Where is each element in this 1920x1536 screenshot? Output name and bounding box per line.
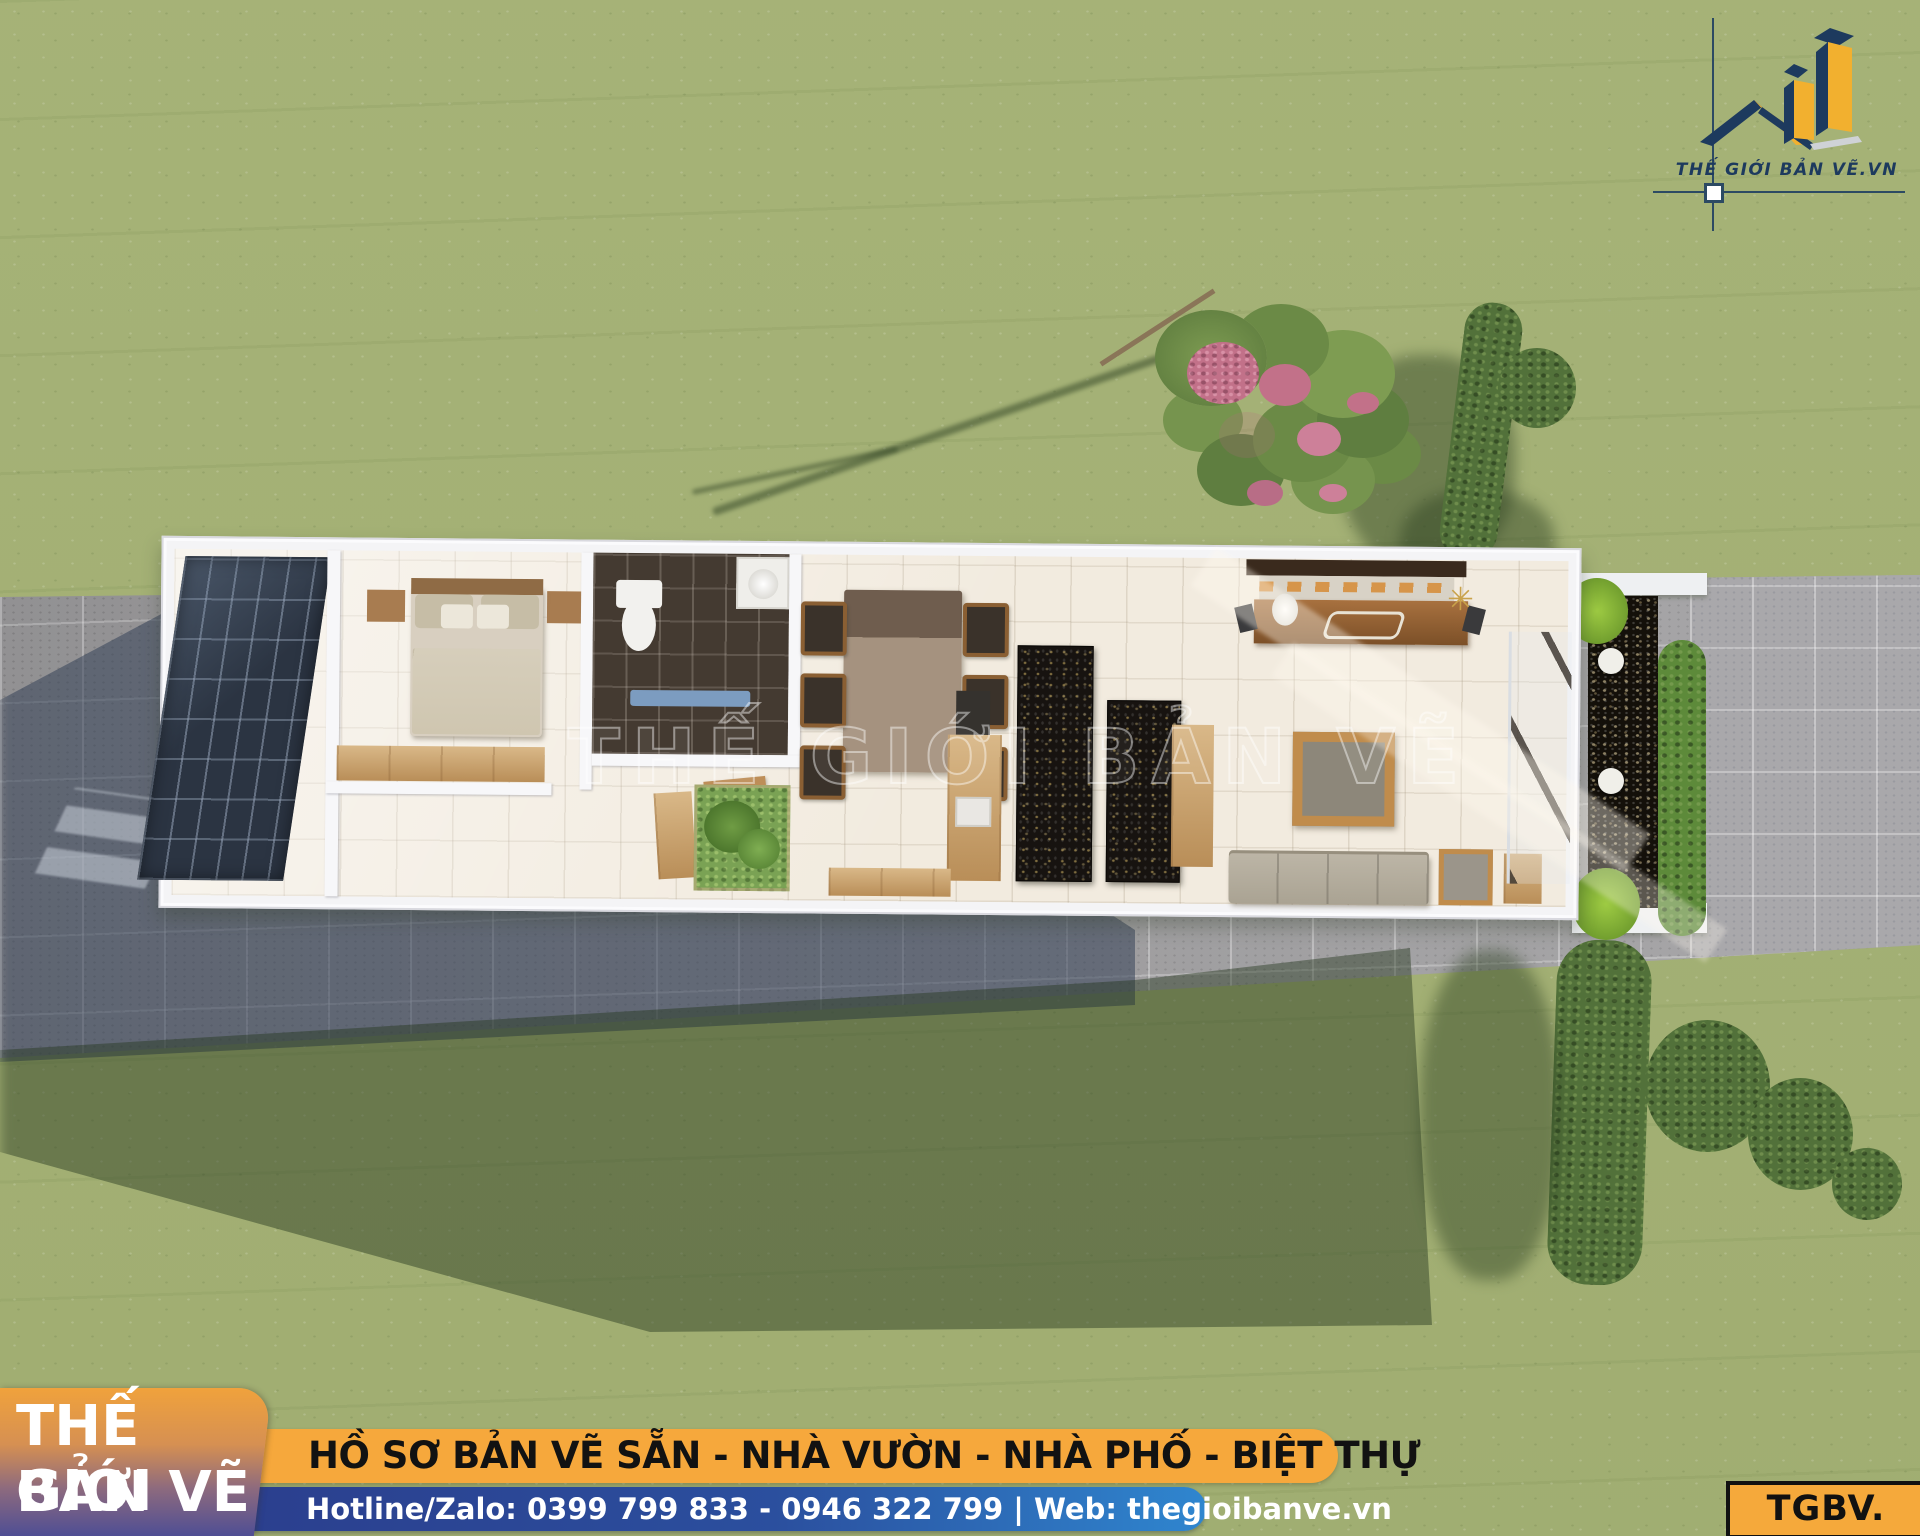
tree-blossoms xyxy=(1187,342,1259,404)
wardrobe xyxy=(337,745,545,782)
headboard xyxy=(411,578,543,595)
wall xyxy=(325,781,551,795)
brand-box-line2: BẢN VẼ xyxy=(16,1460,250,1525)
dining-chair xyxy=(801,601,847,655)
courtyard-plant xyxy=(738,829,780,869)
crosshair-horizontal xyxy=(1653,191,1905,193)
brand-logo: THẾ GIỚI BẢN VẼ.VN xyxy=(1620,8,1920,238)
design-code-badge: TGBV. 1230 xyxy=(1726,1481,1920,1536)
contact-bar: Hotline/Zalo: 0399 799 833 - 0946 322 79… xyxy=(248,1487,1206,1531)
brand-box: THẾ GIỚI BẢN VẼ xyxy=(0,1388,272,1536)
sofa xyxy=(1228,853,1428,905)
duvet xyxy=(412,648,541,735)
nightstand xyxy=(367,590,405,622)
double-bed xyxy=(410,586,543,737)
design-code-text: TGBV. 1230 xyxy=(1730,1485,1920,1536)
kitchen-sink xyxy=(955,797,991,827)
driveway-pavement xyxy=(1690,575,1920,959)
lower-hedge xyxy=(1546,938,1653,1286)
architectural-render-scene: ✳ THẾ GIỚI BẢN VẼ THẾ GIỚI BẢN V xyxy=(0,0,1920,1536)
flowering-tree xyxy=(1115,270,1425,560)
services-text: HỒ SƠ BẢN VẼ SẴN - NHÀ VƯỜN - NHÀ PHỐ - … xyxy=(248,1429,1338,1483)
brand-logo-text: THẾ GIỚI BẢN VẼ.VN xyxy=(1640,160,1898,180)
tree-branch-shadow xyxy=(712,352,1168,516)
sink-counter xyxy=(736,557,789,609)
dried-plant: ✳ xyxy=(1447,581,1483,617)
hedge-bush xyxy=(1498,348,1576,428)
kitchen-counter-low xyxy=(829,868,951,897)
pillow xyxy=(441,604,473,628)
altar-top-shelf xyxy=(1246,559,1466,577)
nightstand xyxy=(547,591,583,623)
dining-chair xyxy=(963,603,1009,657)
hedge-shadow xyxy=(1420,950,1560,1280)
round-bush xyxy=(1832,1148,1902,1220)
stepping-stone xyxy=(1598,768,1624,794)
crosshair-pickbox xyxy=(1704,183,1724,203)
stepping-stone xyxy=(1598,648,1624,674)
toilet-bowl xyxy=(622,599,656,651)
services-bar: HỒ SƠ BẢN VẼ SẴN - NHÀ VƯỜN - NHÀ PHỐ - … xyxy=(248,1429,1338,1483)
bath-mat xyxy=(630,690,750,707)
building-roof-icon xyxy=(1690,24,1890,164)
contact-text: Hotline/Zalo: 0399 799 833 - 0946 322 79… xyxy=(248,1487,1206,1531)
wood-deck xyxy=(653,791,696,879)
armchair xyxy=(1438,849,1492,905)
pillow xyxy=(477,605,509,629)
watermark: THẾ GIỚI BẢN VẼ xyxy=(568,712,1328,801)
basin xyxy=(748,569,778,599)
